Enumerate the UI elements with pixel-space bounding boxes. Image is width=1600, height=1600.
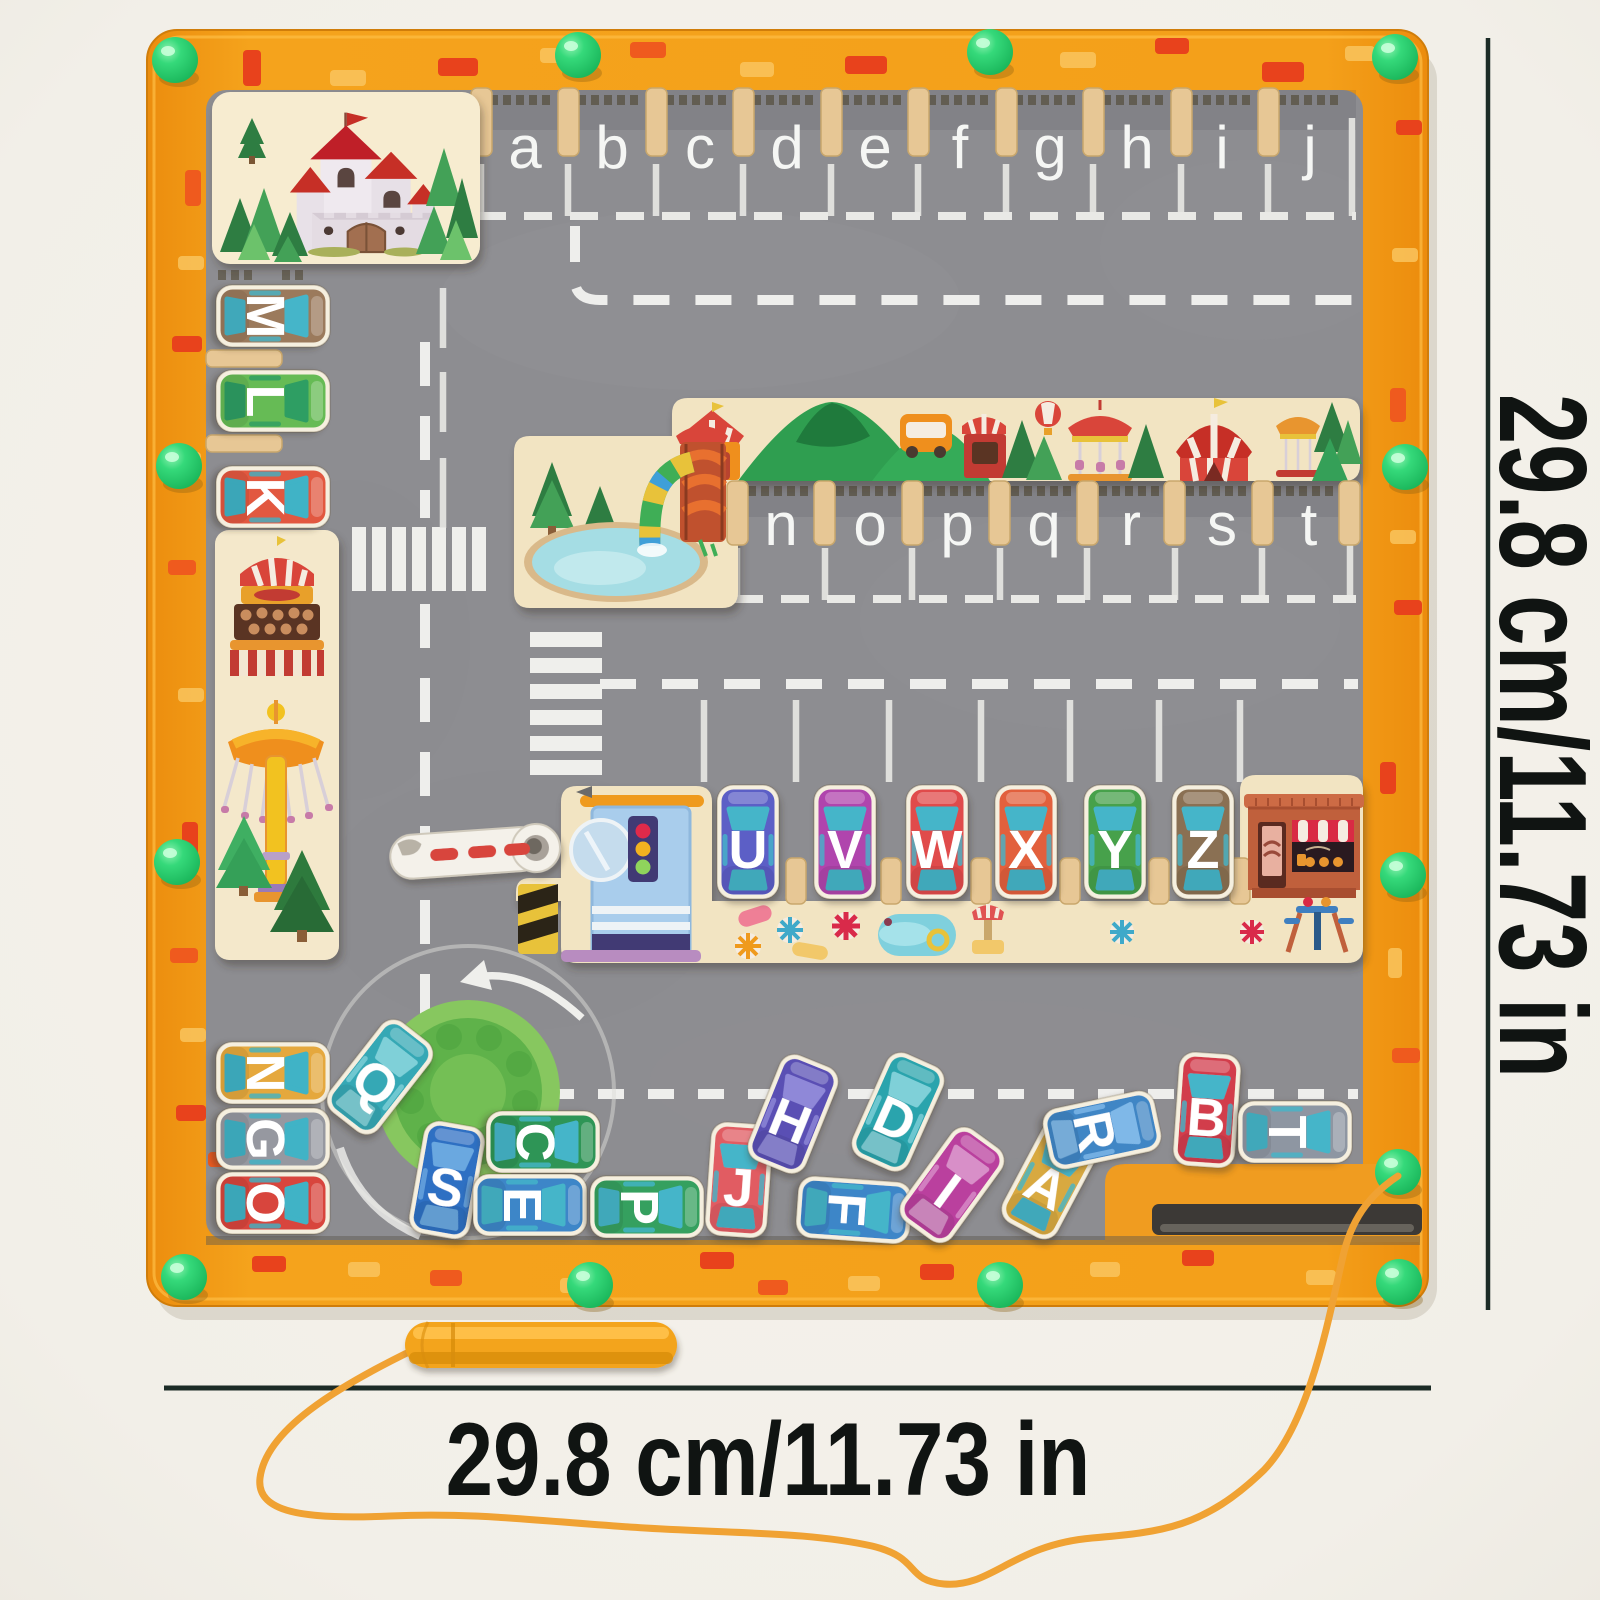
svg-text:L: L (235, 385, 295, 418)
svg-text:G: G (235, 1118, 295, 1160)
svg-text:d: d (770, 114, 803, 181)
svg-text:e: e (858, 114, 891, 181)
svg-text:N: N (235, 1054, 295, 1093)
svg-text:U: U (729, 820, 768, 880)
svg-text:q: q (1027, 491, 1060, 558)
svg-text:29.8 cm/11.73 in: 29.8 cm/11.73 in (446, 1402, 1091, 1518)
svg-text:E: E (492, 1187, 552, 1223)
svg-text:h: h (1120, 114, 1153, 181)
svg-text:29.8 cm/11.73 in: 29.8 cm/11.73 in (1473, 394, 1600, 1078)
svg-text:F: F (815, 1191, 877, 1228)
svg-text:X: X (1008, 820, 1044, 880)
svg-text:a: a (508, 114, 542, 181)
svg-text:c: c (685, 114, 715, 181)
svg-text:b: b (595, 114, 628, 181)
svg-text:M: M (235, 294, 295, 339)
svg-text:p: p (940, 491, 973, 558)
svg-text:O: O (235, 1182, 295, 1224)
svg-text:i: i (1215, 114, 1228, 181)
svg-text:B: B (1185, 1087, 1228, 1150)
svg-text:K: K (235, 478, 295, 517)
svg-text:J: J (721, 1157, 755, 1219)
svg-text:f: f (952, 114, 969, 181)
svg-text:T: T (1257, 1116, 1317, 1149)
svg-text:t: t (1301, 491, 1318, 558)
svg-text:n: n (764, 491, 797, 558)
svg-text:j: j (1301, 114, 1316, 181)
svg-text:r: r (1121, 491, 1141, 558)
svg-text:o: o (853, 491, 886, 558)
svg-text:W: W (912, 820, 963, 880)
svg-text:g: g (1033, 114, 1066, 181)
svg-text:Z: Z (1187, 820, 1220, 880)
svg-text:Y: Y (1097, 820, 1133, 880)
svg-text:P: P (609, 1189, 669, 1225)
svg-text:V: V (827, 820, 863, 880)
svg-text:s: s (1207, 491, 1237, 558)
svg-text:C: C (505, 1123, 565, 1162)
